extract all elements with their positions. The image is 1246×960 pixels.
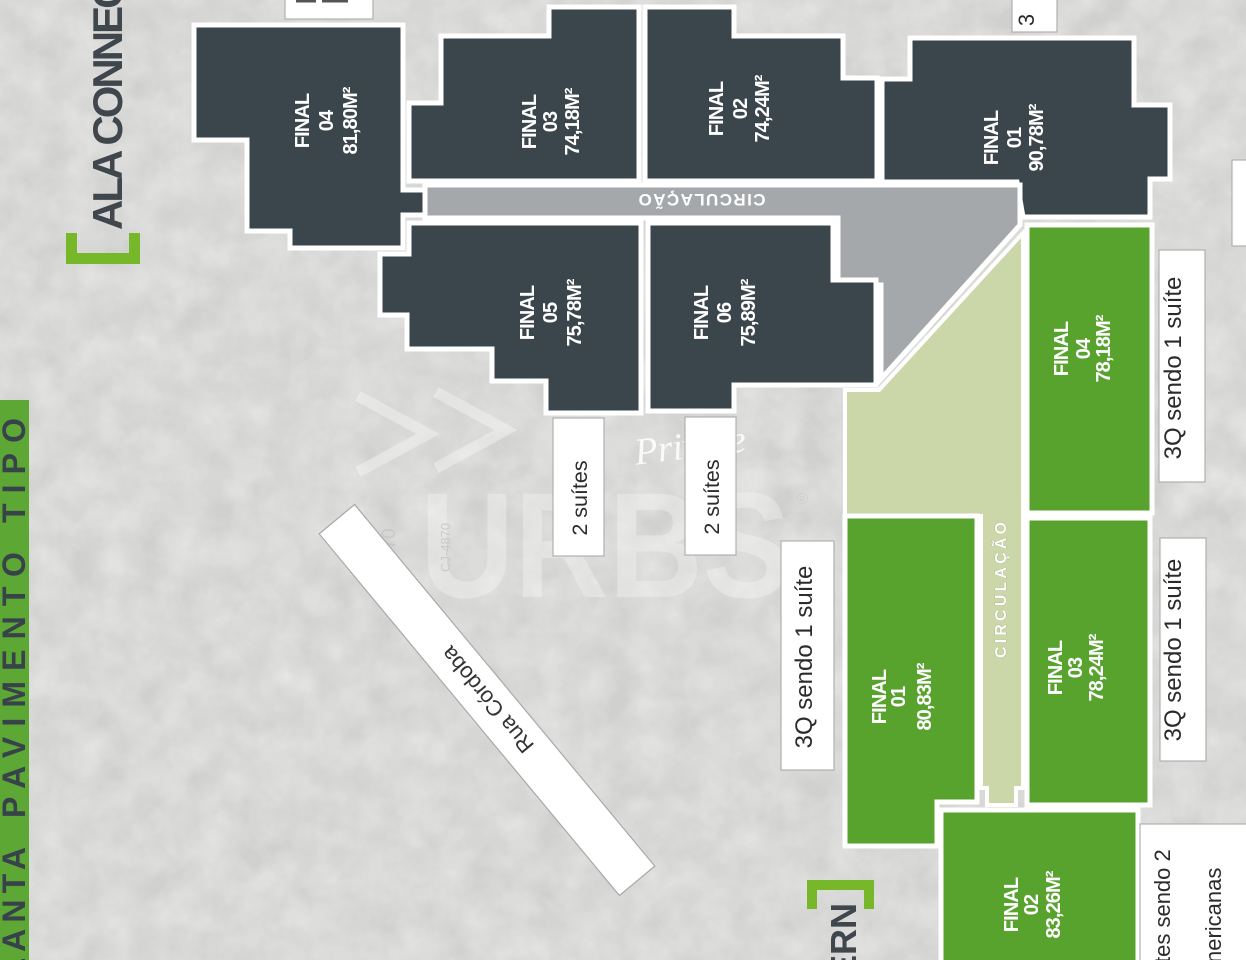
svg-text:2 suítes: 2 suítes (700, 459, 724, 534)
svg-text:PLANTA: PLANTA (0, 847, 32, 960)
svg-text:MODERN: MODERN (823, 903, 864, 960)
svg-text:nericanas: nericanas (1201, 868, 1226, 960)
svg-text:3Q sendo 1 suíte: 3Q sendo 1 suíte (1160, 277, 1187, 460)
svg-text:02: 02 (730, 98, 752, 119)
svg-text:3Q sendo 1 suíte: 3Q sendo 1 suíte (1160, 559, 1187, 742)
svg-text:81,80M²: 81,80M² (340, 86, 362, 154)
svg-text:FINAL: FINAL (706, 81, 728, 136)
svg-text:75,89M²: 75,89M² (738, 278, 760, 346)
svg-text:83,26M²: 83,26M² (1043, 870, 1065, 938)
svg-text:06: 06 (714, 302, 736, 323)
svg-text:2 suítes: 2 suítes (568, 460, 592, 535)
svg-text:01: 01 (1004, 127, 1026, 148)
svg-text:74,18M²: 74,18M² (562, 87, 584, 155)
svg-text:ALA CONNECT: ALA CONNECT (84, 0, 131, 230)
svg-text:FINAL: FINAL (1045, 640, 1067, 695)
svg-text:80,83M²: 80,83M² (914, 662, 936, 730)
svg-text:03: 03 (540, 111, 562, 132)
svg-text:CIRCULAÇÃO: CIRCULAÇÃO (639, 190, 766, 210)
svg-text:CJ-4870: CJ-4870 (438, 523, 453, 572)
svg-text:3Q sendo 1 suíte: 3Q sendo 1 suíte (791, 566, 818, 749)
svg-text:05: 05 (540, 302, 562, 323)
svg-text:01: 01 (888, 686, 910, 707)
svg-text:FINAL: FINAL (1051, 321, 1073, 376)
svg-text:FINAL: FINAL (981, 110, 1003, 165)
svg-text:78,24M²: 78,24M² (1086, 633, 1108, 701)
svg-text:04: 04 (316, 109, 338, 131)
svg-text:78,18M²: 78,18M² (1093, 314, 1115, 382)
svg-text:3: 3 (1014, 14, 1039, 26)
svg-text:®: ® (797, 491, 808, 508)
svg-text:tes sendo 2: tes sendo 2 (1150, 849, 1175, 960)
svg-text:FINAL: FINAL (517, 285, 539, 340)
svg-text:FINAL: FINAL (292, 93, 314, 148)
svg-text:04: 04 (1073, 337, 1095, 359)
svg-text:FINAL: FINAL (519, 94, 541, 149)
svg-text:FINAL: FINAL (1001, 877, 1023, 932)
svg-text:75,78M²: 75,78M² (564, 278, 586, 346)
svg-text:90,78M²: 90,78M² (1026, 103, 1048, 171)
svg-text:02: 02 (1021, 894, 1043, 915)
svg-text:FINAL: FINAL (691, 285, 713, 340)
svg-text:74,24M²: 74,24M² (752, 74, 774, 142)
svg-text:03: 03 (1065, 657, 1087, 678)
